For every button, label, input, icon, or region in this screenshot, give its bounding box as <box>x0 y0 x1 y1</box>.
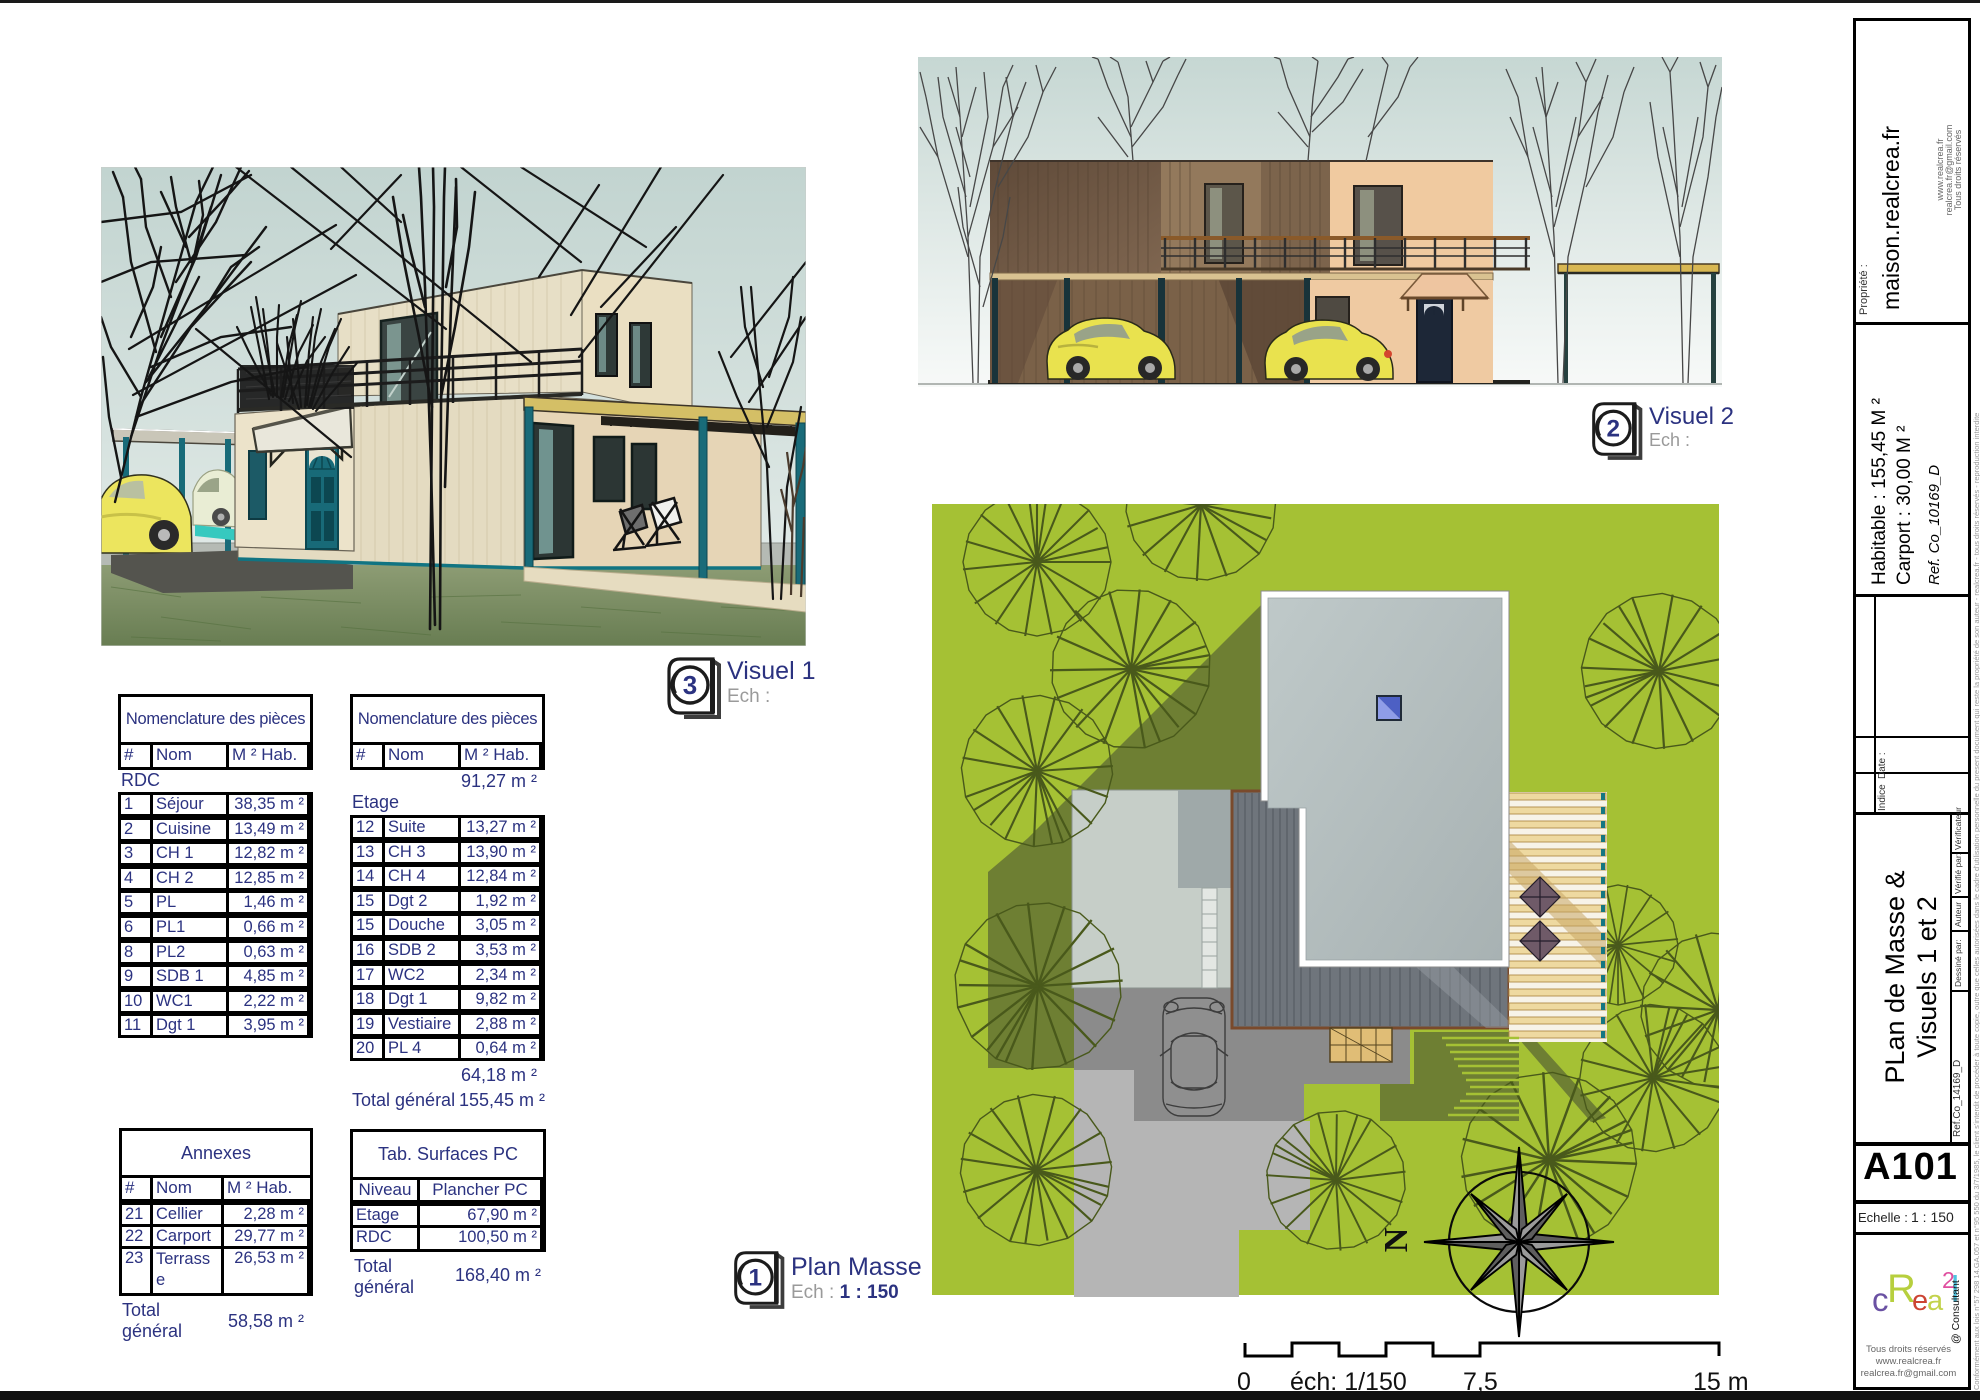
svg-text:N: N <box>1378 1227 1415 1252</box>
svg-text:1: 1 <box>749 1264 763 1291</box>
svg-text:7,5: 7,5 <box>1463 1368 1498 1396</box>
svg-text:0: 0 <box>1237 1368 1251 1396</box>
svg-text:éch: 1/150: éch: 1/150 <box>1290 1368 1407 1396</box>
svg-text:15 m: 15 m <box>1693 1368 1749 1396</box>
svg-text:2: 2 <box>1607 415 1621 442</box>
svg-text:3: 3 <box>683 670 697 700</box>
